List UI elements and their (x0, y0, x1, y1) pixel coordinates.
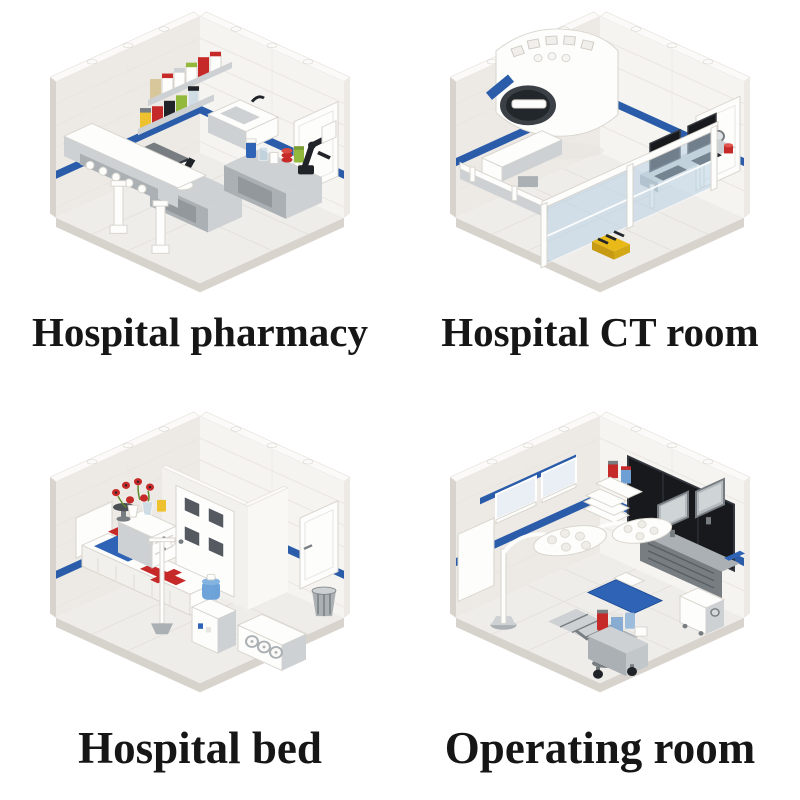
operating-room-render (400, 400, 800, 696)
hospital-ct-room-render (400, 0, 800, 296)
caption-row: Hospital pharmacy (0, 296, 400, 368)
trash-bin (312, 587, 336, 616)
caption-row: Hospital bed (0, 696, 400, 800)
product-image-grid: Hospital pharmacy (0, 0, 800, 800)
hospital-pharmacy-render (0, 0, 400, 296)
product-card-hospital-pharmacy: Hospital pharmacy (0, 0, 400, 400)
product-card-hospital-bed: Hospital bed (0, 400, 400, 800)
caption-hospital-pharmacy: Hospital pharmacy (32, 308, 368, 356)
hospital-bed-render (0, 400, 400, 696)
caption-hospital-ct-room: Hospital CT room (441, 308, 758, 356)
caption-hospital-bed: Hospital bed (78, 722, 322, 774)
caption-operating-room: Operating room (445, 722, 755, 774)
product-card-hospital-ct-room: Hospital CT room (400, 0, 800, 400)
caption-row: Operating room (400, 696, 800, 800)
product-card-operating-room: Operating room (400, 400, 800, 800)
caption-row: Hospital CT room (400, 296, 800, 368)
